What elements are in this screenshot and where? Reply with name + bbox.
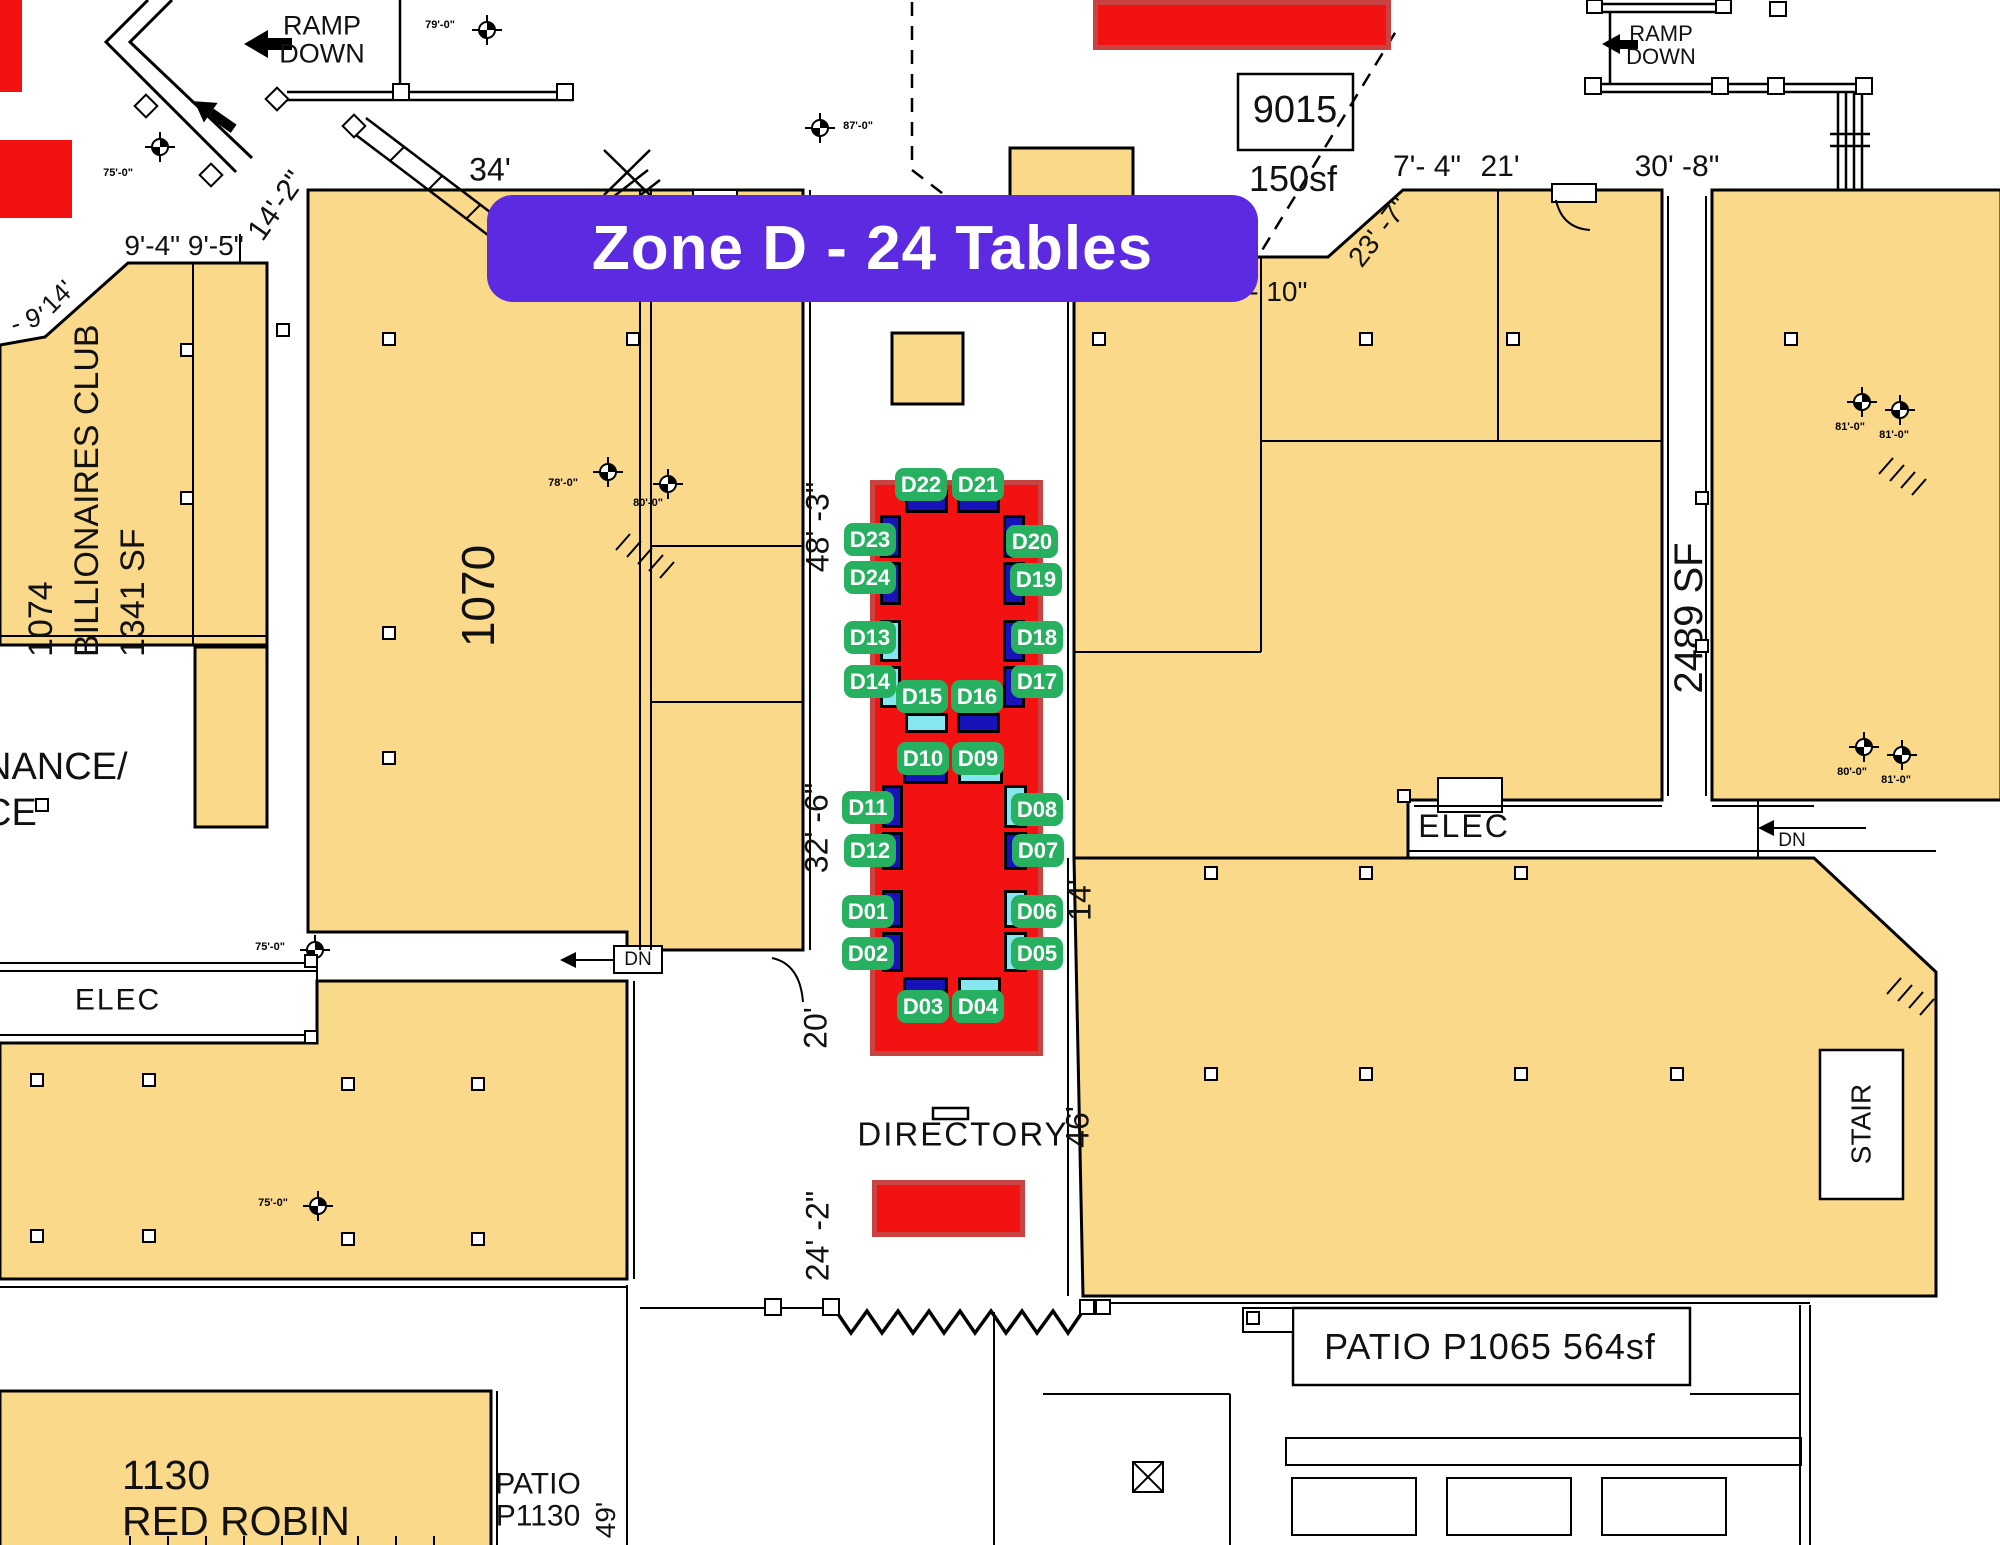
table-badge-D02[interactable]: D02 <box>842 937 894 970</box>
survey-marker-label: 75'-0" <box>103 167 133 179</box>
survey-marker-icon <box>1844 384 1880 420</box>
table-badge-D18[interactable]: D18 <box>1011 621 1063 654</box>
store-area: 1341 SF <box>110 217 156 657</box>
survey-marker-label: 75'-0" <box>255 941 285 953</box>
table-badge-D20[interactable]: D20 <box>1006 525 1058 558</box>
patio-line-1: PATIO <box>495 1469 581 1501</box>
store-2489-label: 2489 SF <box>1668 542 1710 693</box>
survey-marker-label: 81'-0" <box>1879 429 1909 441</box>
table-badge-D09[interactable]: D09 <box>952 742 1004 775</box>
wall-square <box>276 323 290 337</box>
patio-small-square <box>1247 1312 1259 1324</box>
wall-square <box>1514 866 1528 880</box>
wall-square <box>1506 332 1520 346</box>
dimension-label: 20' <box>798 1007 835 1049</box>
dimension-label: 21' <box>1480 150 1519 184</box>
wall-square <box>382 332 396 346</box>
wall-square <box>1092 332 1106 346</box>
zone-d-red-area <box>1093 0 1391 50</box>
survey-marker-label: 87'-0" <box>843 120 873 132</box>
directory-label: DIRECTORY <box>857 1118 1068 1153</box>
wall-square <box>1397 789 1411 803</box>
wall-square <box>1359 1067 1373 1081</box>
table-D16 <box>957 713 1000 733</box>
table-badge-D01[interactable]: D01 <box>842 895 894 928</box>
wall-square <box>142 1073 156 1087</box>
table-badge-D10[interactable]: D10 <box>897 742 949 775</box>
survey-marker-icon <box>1884 737 1920 773</box>
elec-left-label: ELEC <box>75 984 161 1016</box>
table-badge-D19[interactable]: D19 <box>1010 563 1062 596</box>
wall-square <box>1359 332 1373 346</box>
wall-square <box>304 954 318 968</box>
zone-d-red-area <box>0 0 22 92</box>
wall-square <box>180 491 194 505</box>
table-badge-D17[interactable]: D17 <box>1011 665 1063 698</box>
dimension-label: 24' -2" <box>800 1191 837 1281</box>
maintenance-label: NANCE/ CE <box>0 744 128 836</box>
dimension-label: 46' <box>1060 1106 1097 1148</box>
floor-plan-zone-d: D01D02D03D04D05D06D07D08D09D10D11D12D13D… <box>0 0 2000 1545</box>
ramp-down-right-label: RAMP DOWN <box>1626 22 1696 68</box>
survey-marker-label: 81'-0" <box>1835 421 1865 433</box>
maintenance-line-2: CE <box>0 790 128 836</box>
block-bottom-left <box>0 981 627 1279</box>
zone-d-red-area <box>0 140 72 218</box>
store-billionaires-label: 1074 BILLIONAIRES CLUB 1341 SF <box>18 217 158 657</box>
zone-d-red-area <box>872 1180 1025 1237</box>
wall-square <box>382 626 396 640</box>
wall-square <box>1204 1067 1218 1081</box>
table-badge-D16[interactable]: D16 <box>951 680 1003 713</box>
dimension-label: 49' <box>590 1502 622 1539</box>
wall-square <box>382 751 396 765</box>
ramp-line-1: RAMP <box>279 12 364 40</box>
dn-right-label: DN <box>1778 831 1805 851</box>
patio-1130-label: PATIO P1130 <box>495 1469 581 1532</box>
survey-marker-label: 79'-0" <box>425 19 455 31</box>
dimension-label: 9'-4" 9'-5" <box>124 230 243 262</box>
zone-banner: Zone D - 24 Tables <box>487 195 1258 302</box>
wall-square <box>1514 1067 1528 1081</box>
zigzag-lease-line <box>836 1311 1083 1333</box>
dimension-label: 32' -6" <box>799 783 836 873</box>
wall-square <box>1204 866 1218 880</box>
table-badge-D14[interactable]: D14 <box>844 665 896 698</box>
dimension-label: 34' <box>469 152 511 189</box>
wall-square <box>30 1229 44 1243</box>
survey-marker-icon <box>590 454 626 490</box>
store-number: 1130 <box>122 1452 350 1498</box>
dimension-label: 14' <box>1062 879 1099 921</box>
store-red-robin-label: 1130 RED ROBIN <box>122 1452 350 1544</box>
dn-left-arrow-icon <box>560 952 576 968</box>
door-gap-top <box>1552 184 1596 202</box>
wall-square <box>35 798 49 812</box>
survey-marker-icon <box>300 1188 336 1224</box>
table-badge-D12[interactable]: D12 <box>844 834 896 867</box>
patio-line-2: P1130 <box>495 1500 581 1532</box>
survey-marker-icon <box>469 12 505 48</box>
table-D15 <box>905 713 948 733</box>
store-name: RED ROBIN <box>122 1498 350 1544</box>
wall-square <box>1784 332 1798 346</box>
block-1070 <box>308 190 803 950</box>
survey-marker-label: 80'-0" <box>1837 766 1867 778</box>
wall-square <box>30 1073 44 1087</box>
wall-square <box>142 1229 156 1243</box>
wall-square <box>1695 639 1709 653</box>
dimension-label: 48' -3" <box>800 482 837 572</box>
wall-square <box>471 1077 485 1091</box>
table-badge-D24[interactable]: D24 <box>844 561 896 594</box>
dn-left-label: DN <box>624 950 651 970</box>
survey-marker-icon <box>802 110 838 146</box>
survey-marker-label: 75'-0" <box>258 1197 288 1209</box>
table-badge-D08[interactable]: D08 <box>1011 793 1063 826</box>
wall-square <box>180 343 194 357</box>
survey-marker-label: 81'-0" <box>1881 774 1911 786</box>
wall-square <box>626 332 640 346</box>
ramp-left-arrow-icon <box>244 30 268 58</box>
table-badge-D13[interactable]: D13 <box>844 621 896 654</box>
stall-9015-area: 150sf <box>1249 160 1337 198</box>
wall-square <box>471 1232 485 1246</box>
table-badge-D06[interactable]: D06 <box>1011 895 1063 928</box>
table-badge-D23[interactable]: D23 <box>844 523 896 556</box>
wall-square <box>1695 491 1709 505</box>
table-badge-D21[interactable]: D21 <box>952 468 1004 501</box>
wall-square <box>1359 866 1373 880</box>
survey-marker-icon <box>142 129 178 165</box>
table-badge-D11[interactable]: D11 <box>842 791 894 824</box>
dimension-label: 7'- 4" <box>1393 150 1461 184</box>
wall-square <box>341 1232 355 1246</box>
table-badge-D22[interactable]: D22 <box>895 468 947 501</box>
wall-square <box>341 1077 355 1091</box>
ramp-line-2: DOWN <box>1626 45 1696 68</box>
dn-right-arrow-icon <box>1758 820 1774 836</box>
survey-marker-label: 78'-0" <box>548 477 578 489</box>
maintenance-line-1: NANCE/ <box>0 744 128 790</box>
patio-1065-label: PATIO P1065 564sf <box>1324 1328 1656 1366</box>
table-badge-D05[interactable]: D05 <box>1011 937 1063 970</box>
survey-marker-label: 80'-0" <box>633 497 663 509</box>
survey-marker-icon <box>1882 392 1918 428</box>
ramp-line-2: DOWN <box>279 40 364 68</box>
store-1070-label: 1070 <box>454 545 502 647</box>
table-badge-D15[interactable]: D15 <box>896 680 948 713</box>
stall-9015-number: 9015 <box>1253 91 1338 131</box>
block-kiosk <box>892 333 963 404</box>
survey-marker-icon <box>1846 729 1882 765</box>
table-badge-D04[interactable]: D04 <box>952 990 1004 1023</box>
table-badge-D07[interactable]: D07 <box>1012 834 1064 867</box>
block-left-strip <box>195 647 267 827</box>
table-badge-D03[interactable]: D03 <box>897 990 949 1023</box>
ramp-down-left-label: RAMP DOWN <box>279 12 364 69</box>
ramp-line-1: RAMP <box>1626 22 1696 45</box>
block-far-right <box>1712 190 2000 800</box>
store-name: BILLIONAIRES CLUB <box>64 217 110 657</box>
dimension-label: 30' -8" <box>1635 150 1720 184</box>
wall-square <box>1670 1067 1684 1081</box>
stair-label: STAIR <box>1846 1084 1875 1164</box>
elec-right-label: ELEC <box>1418 810 1510 844</box>
wall-square <box>304 1030 318 1044</box>
